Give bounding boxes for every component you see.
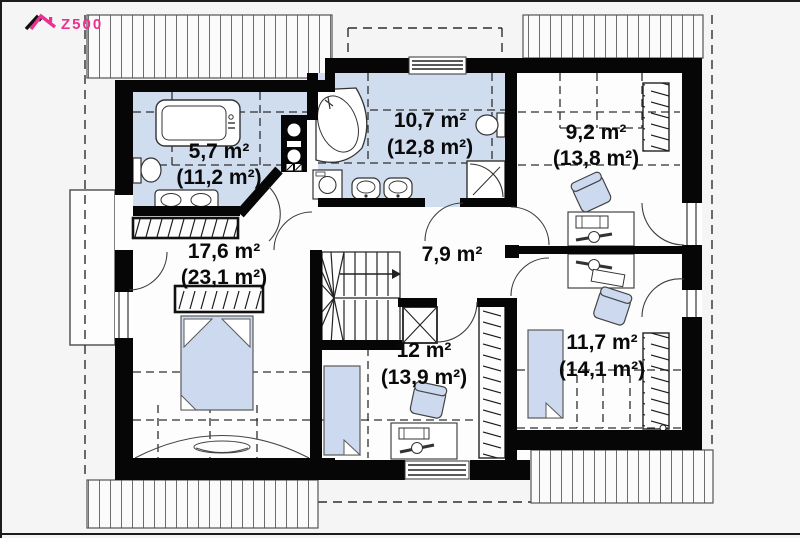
label-bedroom-left-total: (23,1 m²) xyxy=(181,266,267,289)
toilet-small-bath xyxy=(133,158,161,183)
wardrobe-top-right xyxy=(643,83,669,151)
label-bedroom-top-right-total: (13,8 m²) xyxy=(553,147,639,170)
label-bathroom-small-area: 5,7 m² xyxy=(189,140,250,163)
corner-bathtub xyxy=(310,88,367,162)
chimney-grate-top xyxy=(409,57,466,74)
left-bay-outline xyxy=(70,190,115,345)
single-bed-bottom-right xyxy=(528,330,563,418)
window-left-wall xyxy=(115,292,133,338)
label-hallway-area: 7,9 m² xyxy=(422,243,483,266)
roof-hatch-top-right xyxy=(523,15,703,58)
desk-middle xyxy=(391,423,457,459)
floor-plan-svg: 5,7 m² (11,2 m²) 10,7 m² (12,8 m²) 9,2 m… xyxy=(0,0,800,538)
double-bed xyxy=(181,316,253,410)
balcony-door-top-right xyxy=(682,203,702,245)
label-bathroom-small-total: (11,2 m²) xyxy=(176,166,261,189)
roof-hatch-top-left xyxy=(87,15,332,78)
floor-plan-page: 5,7 m² (11,2 m²) 10,7 m² (12,8 m²) 9,2 m… xyxy=(0,0,800,538)
sink-right xyxy=(384,178,412,199)
single-bed-middle xyxy=(324,366,360,455)
label-bathroom-main-area: 10,7 m² xyxy=(394,109,466,132)
staircase xyxy=(322,252,401,345)
label-bedroom-middle-area: 12 m² xyxy=(397,339,452,362)
wardrobe-middle xyxy=(479,306,505,458)
wardrobe-bottom-right xyxy=(643,333,669,429)
balcony-door-bottom-right xyxy=(682,290,702,317)
wardrobe-bedroom-left-top xyxy=(133,218,238,238)
washing-machine xyxy=(313,170,342,199)
label-bedroom-left-area: 17,6 m² xyxy=(188,240,260,263)
desk-top-right xyxy=(568,212,634,246)
wardrobe-bedroom-left xyxy=(175,286,263,312)
desk-bottom-right xyxy=(568,254,634,288)
sink-left xyxy=(352,178,380,199)
corner-shower xyxy=(467,161,505,200)
label-bedroom-bottom-right-total: (14,1 m²) xyxy=(559,358,645,381)
label-bedroom-bottom-right-area: 11,7 m² xyxy=(566,331,637,354)
label-bathroom-main-total: (12,8 m²) xyxy=(387,136,473,159)
roof-hatch-bottom-right xyxy=(531,450,713,503)
label-bedroom-middle-total: (13,9 m²) xyxy=(381,366,467,389)
toilet-main-bath xyxy=(476,113,505,137)
duct-shaft xyxy=(403,307,437,343)
roof-hatch-bottom-left xyxy=(87,480,318,528)
label-bedroom-top-right-area: 9,2 m² xyxy=(566,121,627,144)
brand-text: Z500 xyxy=(61,16,103,33)
chimney-grate-bottom xyxy=(405,461,469,479)
